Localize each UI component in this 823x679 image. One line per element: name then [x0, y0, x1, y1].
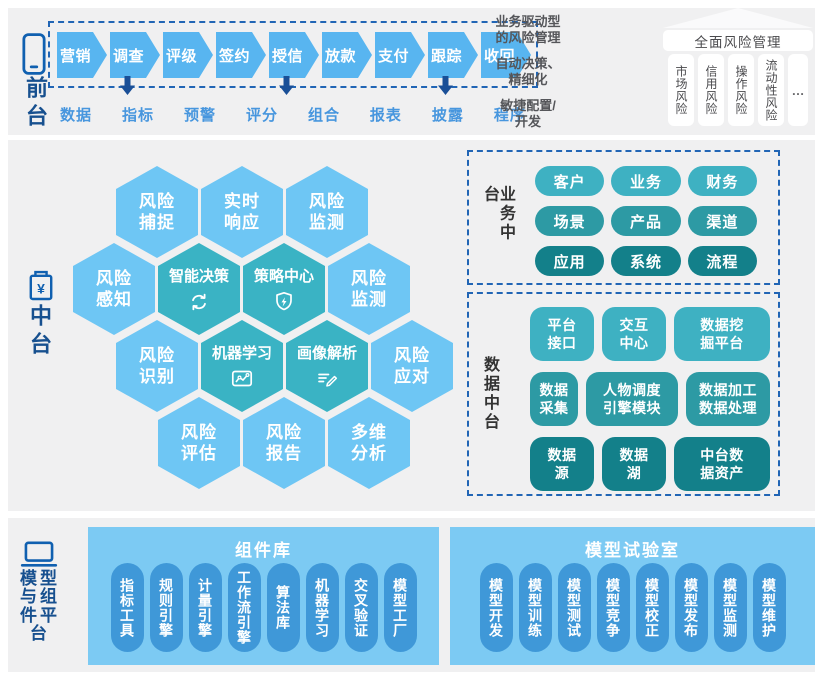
business-pill-customer: 客户	[535, 166, 604, 196]
lab-pill-model-testing: 模型测试	[558, 563, 591, 652]
data-pill-assets: 中台数据资产	[674, 437, 770, 491]
line-chart-icon	[230, 367, 254, 391]
business-center-box: 业务中台 客户 业务 财务 场景 产品 渠道 应用 系统 流程	[467, 150, 780, 285]
lab-pill-model-development: 模型开发	[480, 563, 513, 652]
sub-label-portfolio: 组合	[308, 104, 340, 125]
data-pill-collection: 数据采集	[530, 372, 578, 426]
hexagon-risk-response: 风险应对	[371, 320, 453, 412]
lib-pill-measurement-engine: 计量引擎	[189, 563, 222, 652]
lib-pill-workflow-engine: 工作流引擎	[228, 563, 261, 652]
sub-label-report: 报表	[370, 104, 402, 125]
business-pill-grid: 客户 业务 财务 场景 产品 渠道 应用 系统 流程	[535, 166, 757, 286]
risk-pill-market: 市场风险	[668, 54, 694, 126]
hexagon-risk-capture: 风险捕捉	[116, 166, 198, 258]
flow-step-payment: 支付	[375, 32, 425, 78]
hexagon-realtime-response: 实时响应	[201, 166, 283, 258]
lab-pill-model-calibration: 模型校正	[636, 563, 669, 652]
business-pill-finance: 财务	[688, 166, 757, 196]
hexagon-risk-monitoring-1: 风险监测	[286, 166, 368, 258]
risk-pill-operational: 操作风险	[728, 54, 754, 126]
feature-agile-config: 敏捷配置/开发	[475, 98, 581, 129]
model-lab-panel: 模型试验室 模型开发 模型训练 模型测试 模型竞争 模型校正 模型发布 模型监测…	[450, 527, 815, 665]
data-pill-processing: 数据加工数据处理	[686, 372, 770, 426]
hexagon-intelligent-decision: 智能决策	[158, 243, 240, 335]
middle-stage-label: 中台	[28, 304, 50, 360]
phone-icon	[22, 32, 46, 76]
model-lab-title: 模型试验室	[450, 527, 815, 561]
feature-text-block: 业务驱动型的风险管理 自动决策、精细化 敏捷配置/开发	[475, 14, 581, 141]
lib-pill-algorithm-library: 算法库	[267, 563, 300, 652]
comprehensive-risk-block: 全面风险管理 市场风险 信用风险 操作风险 流动性风险 …	[663, 8, 813, 126]
hexagon-multidim-analysis: 多维分析	[328, 397, 410, 489]
lab-pill-model-competition: 模型竞争	[597, 563, 630, 652]
flow-step-credit-granting: 授信	[269, 32, 319, 78]
flow-step-signing: 签约	[216, 32, 266, 78]
platform-label: 模型与组件平台	[16, 570, 64, 643]
data-pill-mining-platform: 数据挖掘平台	[674, 307, 770, 361]
data-pill-scheduling-engine: 人物调度引擎模块	[586, 372, 678, 426]
lib-pill-cross-validation: 交叉验证	[345, 563, 378, 652]
data-pill-interaction-center: 交互中心	[602, 307, 666, 361]
sync-arrows-icon	[187, 290, 211, 314]
front-stage-label: 前台	[24, 76, 46, 132]
flow-sub-labels: 数据 指标 预警 评分 组合 报表 披露 程序	[60, 104, 526, 125]
data-pill-grid: 平台接口 交互中心 数据挖掘平台 数据采集 人物调度引擎模块 数据加工数据处理 …	[530, 307, 770, 502]
data-pill-lake: 数据湖	[602, 437, 666, 491]
platform-band: 模型与组件平台 组件库 指标工具 规则引擎 计量引擎 工作流引擎 算法库 机器学…	[8, 518, 815, 672]
hexagon-risk-assessment: 风险评估	[158, 397, 240, 489]
flow-step-loan-release: 放款	[322, 32, 372, 78]
component-library-panel: 组件库 指标工具 规则引擎 计量引擎 工作流引擎 算法库 机器学习 交叉验证 模…	[88, 527, 439, 665]
hexagon-machine-learning: 机器学习	[201, 320, 283, 412]
hexagon-risk-report: 风险报告	[243, 397, 325, 489]
hexagon-risk-identification: 风险识别	[116, 320, 198, 412]
business-pill-scenario: 场景	[535, 206, 604, 236]
feature-business-driven: 业务驱动型的风险管理	[475, 14, 581, 45]
model-lab-pills: 模型开发 模型训练 模型测试 模型竞争 模型校正 模型发布 模型监测 模型维护	[450, 563, 815, 652]
component-library-title: 组件库	[88, 527, 439, 561]
front-stage-band: 前台 营销 调查 评级 签约 授信 放款 支付 跟踪 收回 数据 指标 预警 评…	[8, 8, 815, 135]
data-pill-source: 数据源	[530, 437, 594, 491]
flow-step-investigation: 调查	[110, 32, 160, 78]
process-flow: 营销 调查 评级 签约 授信 放款 支付 跟踪 收回	[57, 32, 531, 78]
flow-step-marketing: 营销	[57, 32, 107, 78]
hexagon-strategy-center: 策略中心	[243, 243, 325, 335]
business-pill-system: 系统	[611, 246, 680, 276]
lib-pill-model-factory: 模型工厂	[384, 563, 417, 652]
risk-pill-more: …	[788, 54, 808, 126]
flow-step-rating: 评级	[163, 32, 213, 78]
lib-pill-rule-engine: 规则引擎	[150, 563, 183, 652]
lab-pill-model-maintenance: 模型维护	[753, 563, 786, 652]
business-pill-business: 业务	[611, 166, 680, 196]
laptop-icon	[20, 541, 58, 569]
hexagon-profile-analysis: 画像解析	[286, 320, 368, 412]
sub-label-indicator: 指标	[122, 104, 154, 125]
risk-type-pills: 市场风险 信用风险 操作风险 流动性风险 …	[663, 54, 813, 126]
lib-pill-indicator-tools: 指标工具	[111, 563, 144, 652]
data-center-box: 数据中台 平台接口 交互中心 数据挖掘平台 数据采集 人物调度引擎模块 数据加工…	[467, 292, 780, 496]
business-pill-process: 流程	[688, 246, 757, 276]
sub-label-warning: 预警	[184, 104, 216, 125]
business-pill-application: 应用	[535, 246, 604, 276]
svg-text:¥: ¥	[37, 280, 45, 296]
sub-label-scoring: 评分	[246, 104, 278, 125]
risk-pill-liquidity: 流动性风险	[758, 54, 784, 126]
sub-label-data: 数据	[60, 104, 92, 125]
cash-register-icon: ¥	[28, 270, 54, 302]
data-pill-platform-interface: 平台接口	[530, 307, 594, 361]
hexagon-risk-monitoring-2: 风险监测	[328, 243, 410, 335]
flow-step-tracking: 跟踪	[428, 32, 478, 78]
shield-bolt-icon	[272, 290, 296, 314]
hexagon-risk-perception: 风险感知	[73, 243, 155, 335]
middle-stage-band: ¥ 中台 风险捕捉 实时响应 风险监测 风险感知 智能决策 策略中心 风险监测 …	[8, 140, 815, 511]
comprehensive-risk-title: 全面风险管理	[663, 30, 813, 51]
risk-pill-credit: 信用风险	[698, 54, 724, 126]
lab-pill-model-training: 模型训练	[519, 563, 552, 652]
data-center-label: 数据中台	[481, 356, 497, 432]
lib-pill-machine-learning: 机器学习	[306, 563, 339, 652]
edit-document-icon	[315, 367, 339, 391]
business-pill-product: 产品	[611, 206, 680, 236]
feature-auto-decision: 自动决策、精细化	[475, 56, 581, 87]
sub-label-disclosure: 披露	[432, 104, 464, 125]
roof-shape	[663, 8, 813, 28]
business-pill-channel: 渠道	[688, 206, 757, 236]
lab-pill-model-monitoring: 模型监测	[714, 563, 747, 652]
business-center-label: 业务中台	[481, 185, 513, 251]
lab-pill-model-release: 模型发布	[675, 563, 708, 652]
component-library-pills: 指标工具 规则引擎 计量引擎 工作流引擎 算法库 机器学习 交叉验证 模型工厂	[88, 563, 439, 652]
